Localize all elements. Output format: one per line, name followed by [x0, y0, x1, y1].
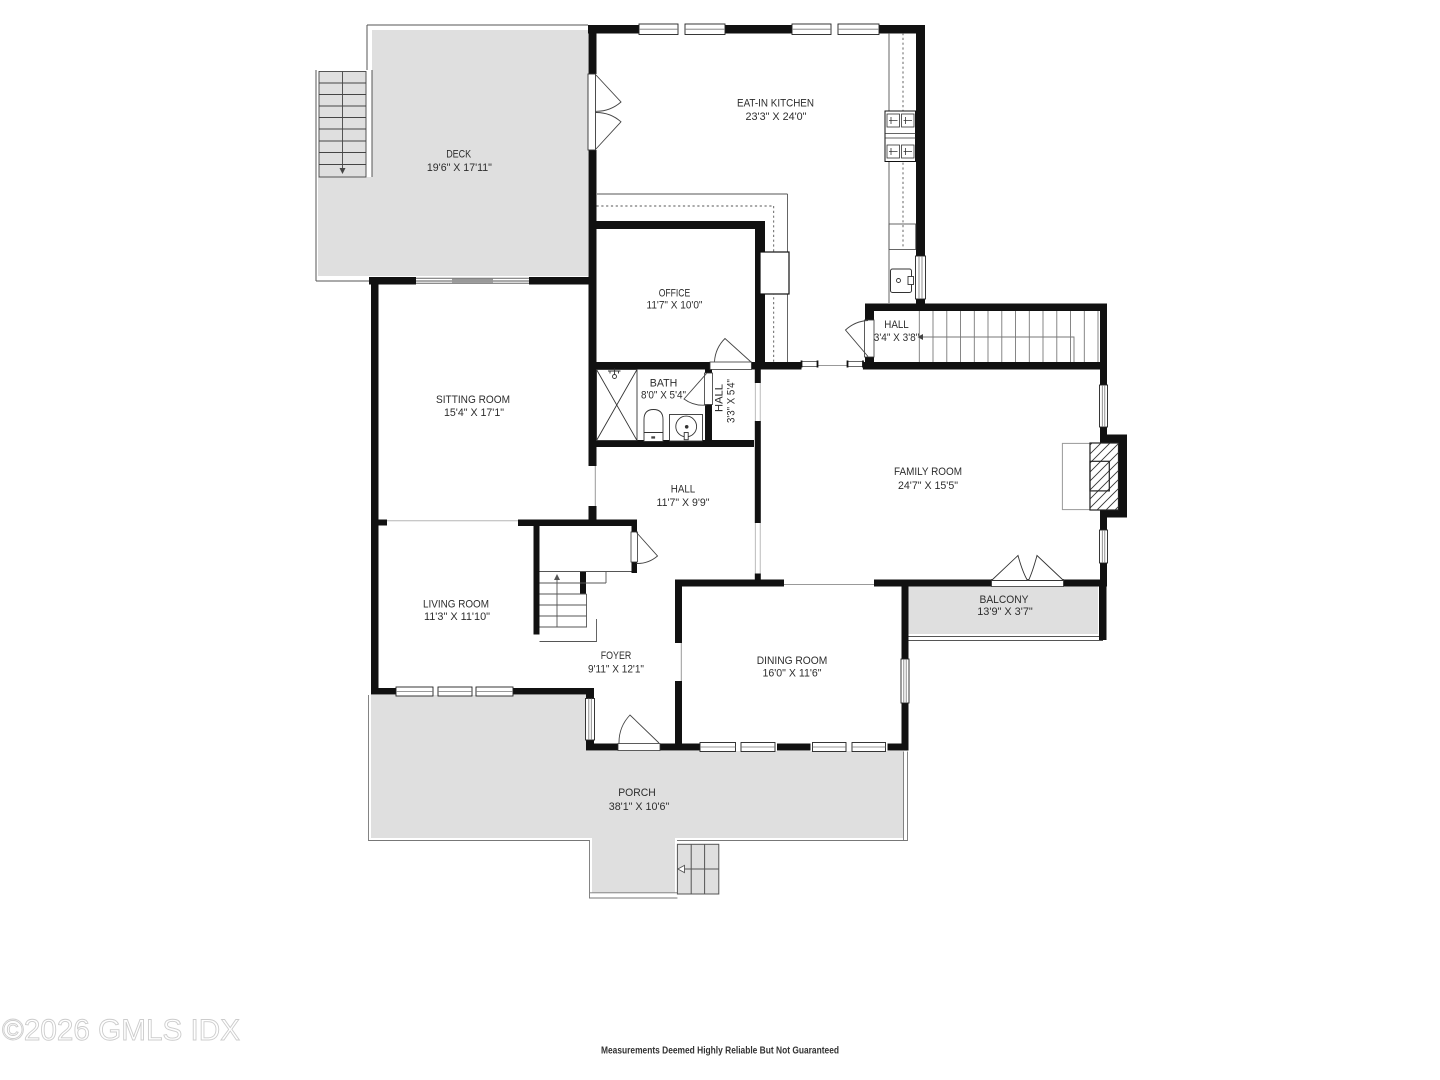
svg-text:PORCH: PORCH: [618, 787, 656, 799]
svg-text:15'4" X 17'1": 15'4" X 17'1": [444, 407, 504, 419]
svg-text:FOYER: FOYER: [601, 650, 632, 662]
svg-text:13'9" X 3'7": 13'9" X 3'7": [977, 606, 1033, 618]
svg-text:LIVING ROOM: LIVING ROOM: [423, 599, 489, 611]
svg-text:Measurements Deemed Highly Rel: Measurements Deemed Highly Reliable But …: [601, 1046, 839, 1057]
svg-text:HALL: HALL: [671, 484, 696, 496]
svg-text:3'4" X 3'8": 3'4" X 3'8": [874, 332, 920, 344]
svg-text:BALCONY: BALCONY: [980, 594, 1029, 606]
svg-text:8'0" X 5'4": 8'0" X 5'4": [641, 390, 686, 402]
svg-text:HALL: HALL: [884, 319, 909, 331]
svg-text:HALL: HALL: [714, 384, 726, 412]
svg-text:©2026 GMLS IDX: ©2026 GMLS IDX: [2, 1014, 240, 1047]
svg-text:11'7" X 10'0": 11'7" X 10'0": [647, 300, 703, 312]
svg-text:SITTING ROOM: SITTING ROOM: [436, 394, 510, 406]
svg-text:11'3" X 11'10": 11'3" X 11'10": [424, 611, 490, 623]
svg-text:24'7" X 15'5": 24'7" X 15'5": [898, 480, 958, 492]
svg-text:EAT-IN KITCHEN: EAT-IN KITCHEN: [737, 98, 814, 110]
svg-text:FAMILY ROOM: FAMILY ROOM: [894, 466, 962, 478]
svg-text:DINING ROOM: DINING ROOM: [757, 655, 828, 667]
svg-text:23'3" X 24'0": 23'3" X 24'0": [746, 111, 807, 123]
svg-text:11'7" X 9'9": 11'7" X 9'9": [657, 497, 710, 509]
svg-text:19'6" X 17'11": 19'6" X 17'11": [427, 162, 492, 174]
svg-text:9'11" X 12'1": 9'11" X 12'1": [588, 664, 644, 676]
svg-text:16'0" X 11'6": 16'0" X 11'6": [763, 668, 822, 680]
svg-text:OFFICE: OFFICE: [659, 288, 691, 300]
svg-text:3'3" X 5'4": 3'3" X 5'4": [726, 379, 738, 423]
svg-text:38'1" X 10'6": 38'1" X 10'6": [609, 801, 670, 813]
svg-text:BATH: BATH: [650, 378, 678, 390]
svg-text:DECK: DECK: [446, 149, 471, 161]
